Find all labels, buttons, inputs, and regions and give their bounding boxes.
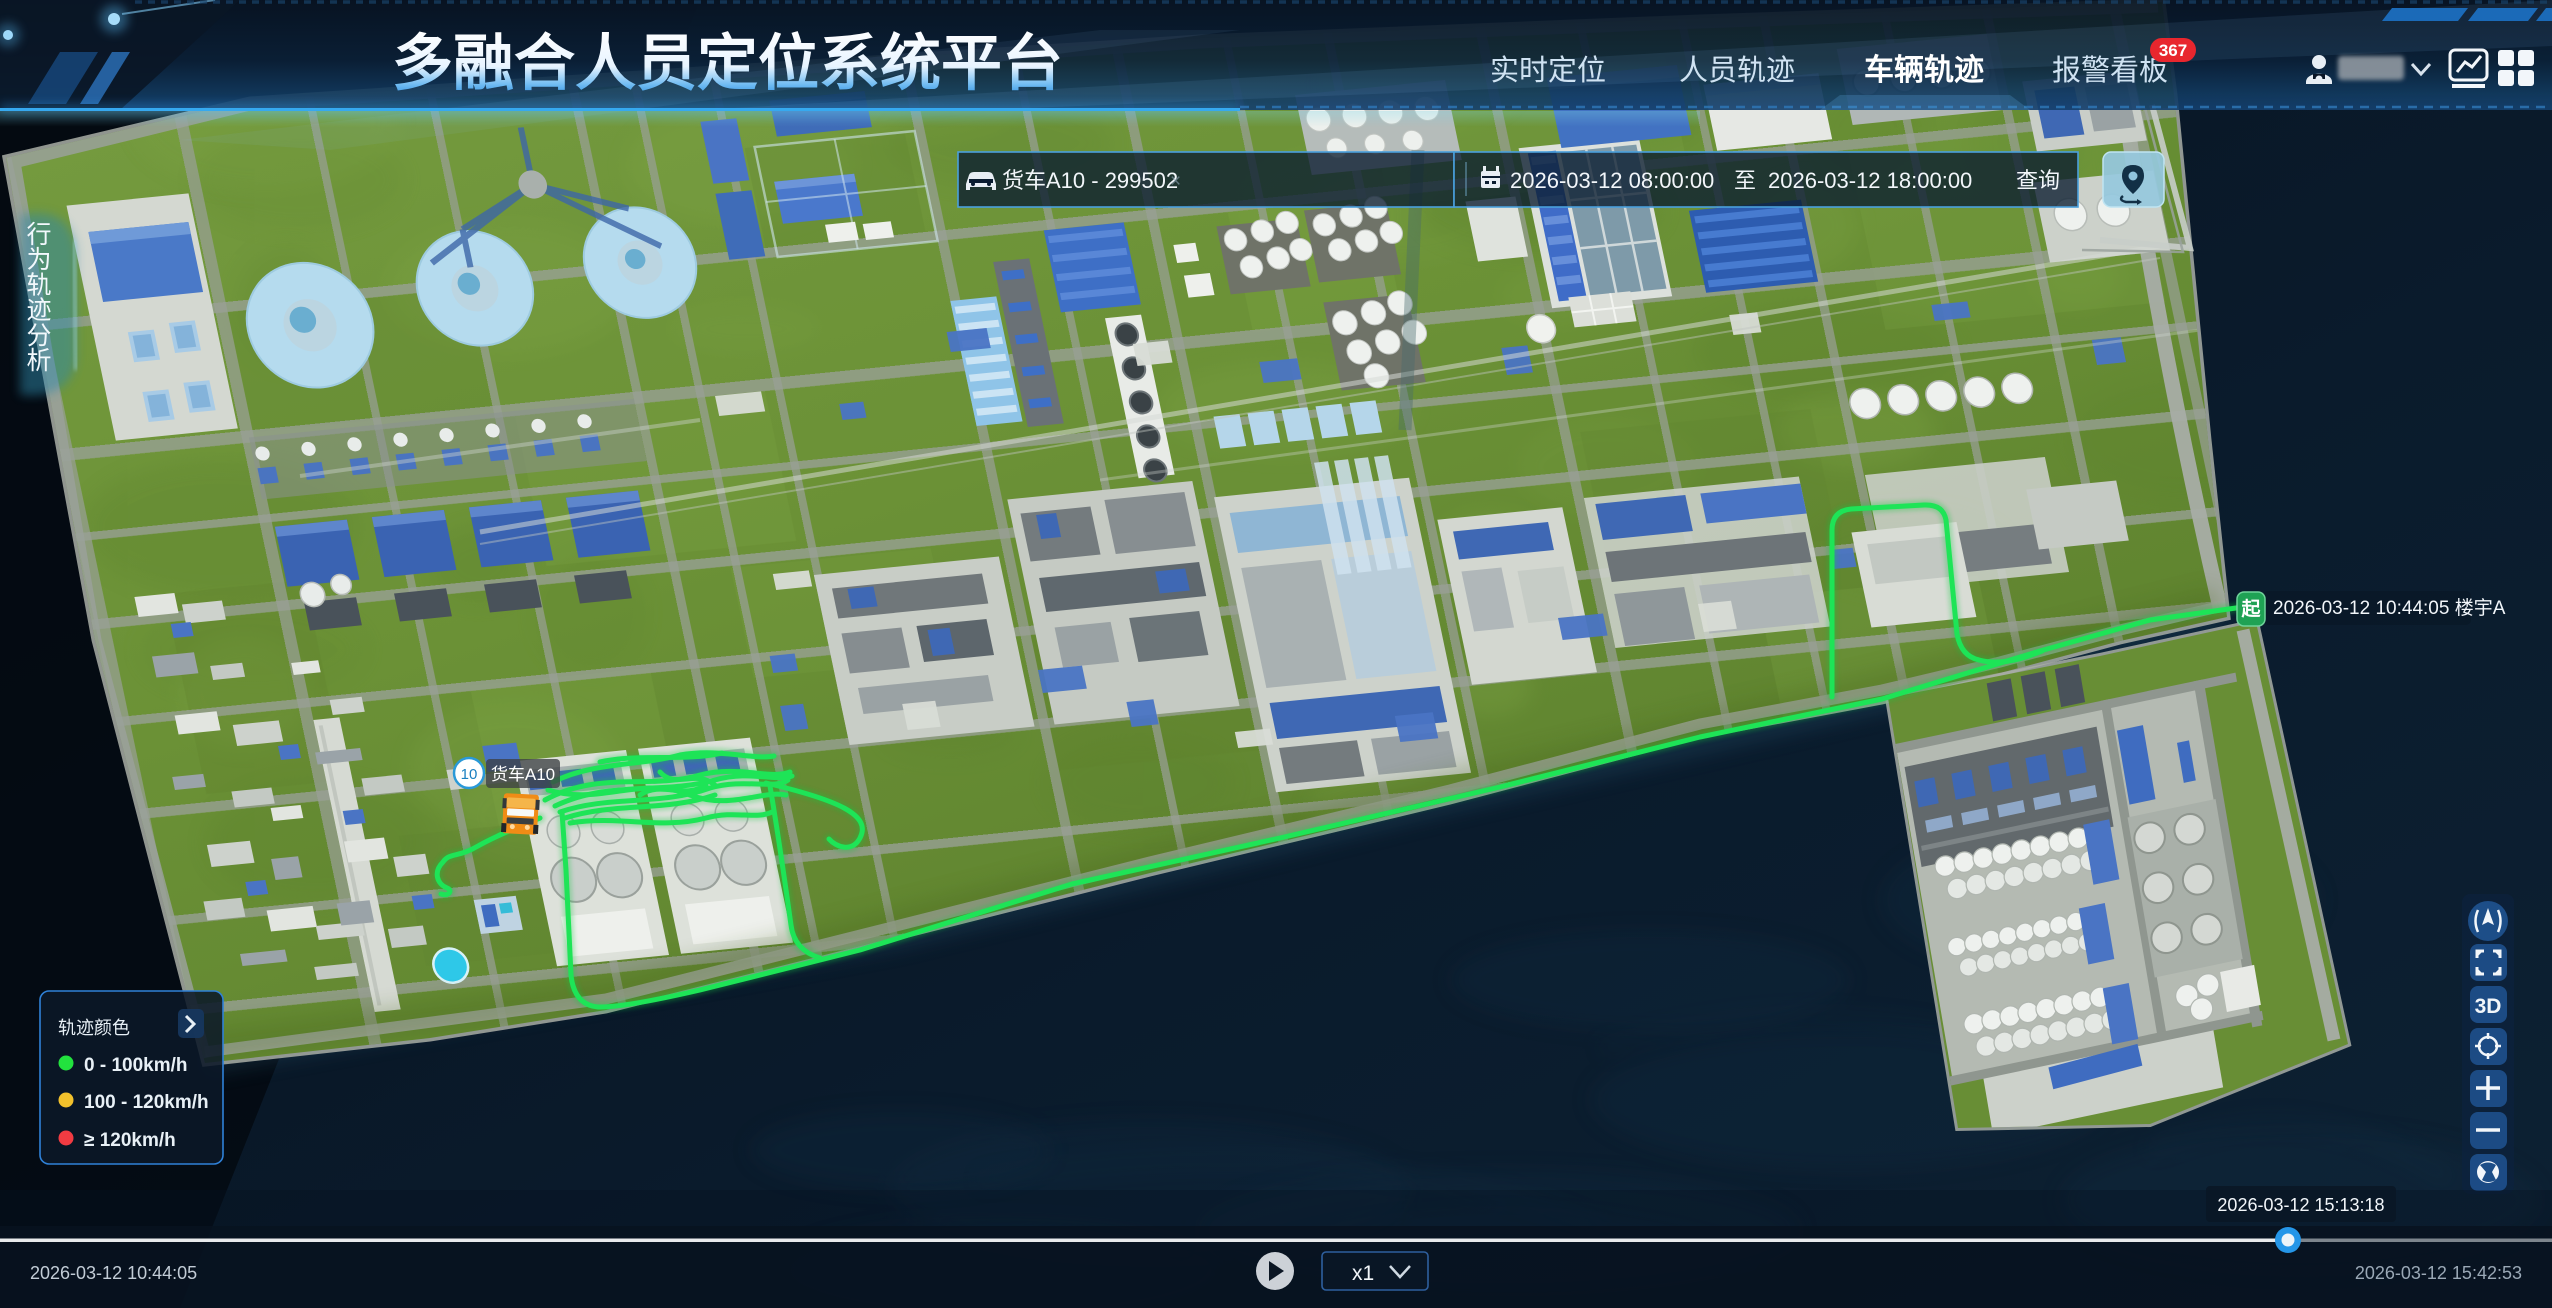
svg-text:车辆轨迹: 车辆轨迹 [1864, 53, 1984, 87]
svg-text:2026-03-12 18:00:00: 2026-03-12 18:00:00 [1768, 168, 1972, 193]
svg-text:迹: 迹 [26, 297, 51, 325]
svg-text:轨迹颜色: 轨迹颜色 [58, 1018, 130, 1038]
svg-text:行: 行 [26, 221, 51, 249]
svg-text:2026-03-12 15:42:53: 2026-03-12 15:42:53 [2355, 1263, 2522, 1283]
svg-text:实时定位: 实时定位 [1490, 54, 1606, 87]
svg-text:367: 367 [2159, 41, 2187, 60]
svg-text:析: 析 [26, 347, 51, 375]
svg-text:3D: 3D [2475, 995, 2502, 1018]
svg-text:报警看板: 报警看板 [2052, 54, 2168, 87]
svg-text:≥ 120km/h: ≥ 120km/h [84, 1130, 176, 1151]
svg-text:货车A10: 货车A10 [491, 765, 555, 784]
svg-text:起: 起 [2240, 598, 2261, 620]
svg-text:轨: 轨 [26, 271, 51, 299]
svg-text:至: 至 [1734, 168, 1756, 193]
svg-text:0 - 100km/h: 0 - 100km/h [84, 1055, 188, 1076]
svg-text:分: 分 [26, 322, 51, 350]
svg-text:2026-03-12 10:44:05 楼宇A: 2026-03-12 10:44:05 楼宇A [2273, 597, 2506, 619]
svg-text:为: 为 [26, 246, 51, 274]
svg-text:货车A10 - 299502: 货车A10 - 299502 [1002, 168, 1178, 193]
svg-text:×: × [1170, 171, 1181, 192]
svg-text:10: 10 [461, 766, 478, 783]
svg-text:人员轨迹: 人员轨迹 [1679, 54, 1795, 87]
svg-text:多融合人员定位系统平台: 多融合人员定位系统平台 [392, 29, 1063, 97]
svg-text:2026-03-12 08:00:00: 2026-03-12 08:00:00 [1510, 168, 1714, 193]
svg-text:100 - 120km/h: 100 - 120km/h [84, 1092, 209, 1113]
svg-text:x1: x1 [1352, 1262, 1374, 1285]
svg-text:2026-03-12 10:44:05: 2026-03-12 10:44:05 [30, 1263, 197, 1283]
svg-text:2026-03-12 15:13:18: 2026-03-12 15:13:18 [2217, 1195, 2384, 1215]
svg-text:查询: 查询 [2016, 168, 2060, 193]
